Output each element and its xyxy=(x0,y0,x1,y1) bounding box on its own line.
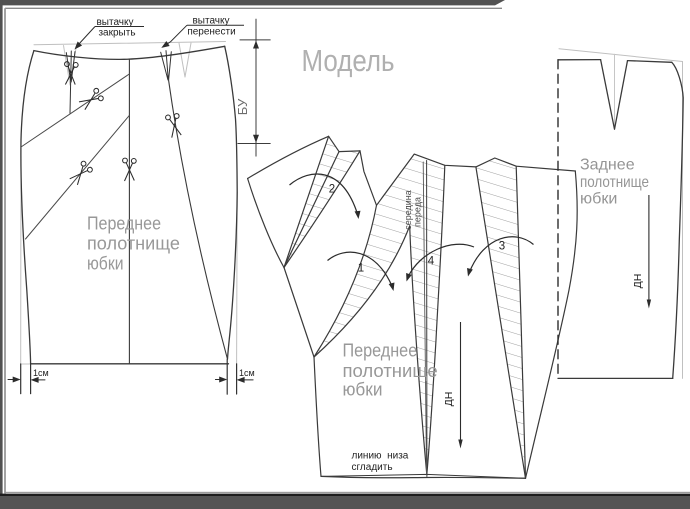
svg-text:середина: середина xyxy=(403,190,413,230)
svg-text:2: 2 xyxy=(329,184,335,196)
svg-text:ДН: ДН xyxy=(632,274,644,289)
svg-text:юбки: юбки xyxy=(87,254,124,274)
svg-text:полотнище: полотнище xyxy=(580,174,649,191)
svg-text:переда: переда xyxy=(413,197,423,227)
svg-text:Модель: Модель xyxy=(302,43,395,78)
svg-text:1см: 1см xyxy=(33,368,49,378)
svg-text:Заднее: Заднее xyxy=(580,157,635,174)
svg-text:1см: 1см xyxy=(239,368,255,378)
svg-text:полотнище: полотнище xyxy=(87,234,180,254)
svg-text:линию низа: линию низа xyxy=(352,451,409,462)
svg-text:3: 3 xyxy=(499,241,505,253)
svg-text:4: 4 xyxy=(428,256,435,268)
svg-text:юбки: юбки xyxy=(343,379,383,399)
svg-text:полотнище: полотнище xyxy=(343,361,438,381)
svg-text:юбки: юбки xyxy=(580,191,617,208)
svg-text:БУ: БУ xyxy=(235,98,250,115)
svg-text:сгладить: сгладить xyxy=(352,462,393,473)
svg-text:ДН: ДН xyxy=(443,392,455,407)
svg-text:закрыть: закрыть xyxy=(98,28,135,39)
svg-text:Переднее: Переднее xyxy=(87,214,161,234)
svg-text:Переднее: Переднее xyxy=(343,340,418,360)
svg-text:1: 1 xyxy=(358,263,364,275)
svg-text:перенести: перенести xyxy=(187,27,235,38)
